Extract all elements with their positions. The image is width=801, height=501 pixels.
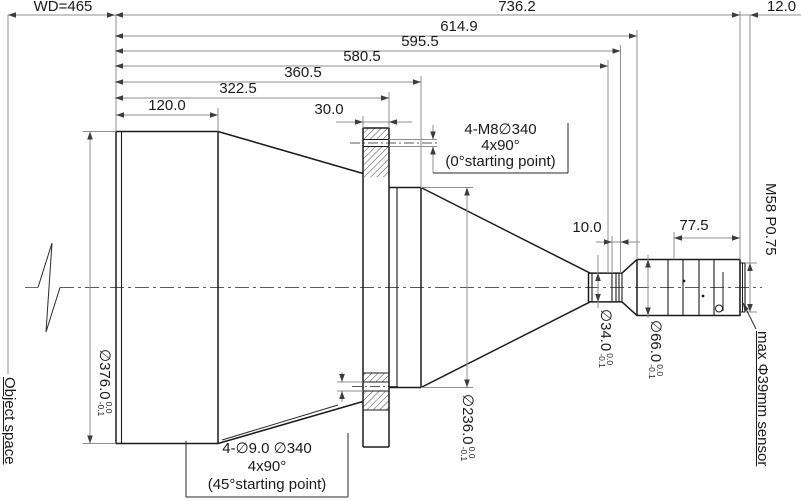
dia-34-tolerance: 0.0-0.1 — [598, 353, 614, 368]
dia-236-label: ∅236.00.0-0.1 — [460, 394, 476, 461]
dim-595-5: 595.5 — [382, 35, 458, 49]
dim-614-9: 614.9 — [421, 20, 497, 34]
object-space-label: Object space — [2, 377, 17, 465]
dim-736-2: 736.2 — [479, 0, 555, 14]
dim-30-0: 30.0 — [301, 103, 357, 117]
through-holes-line2: 4x90° — [187, 458, 347, 475]
dia-376-tolerance: 0.0-0.1 — [97, 402, 113, 417]
m58-thread-label: M58 P0.75 — [763, 183, 778, 256]
lens-dimension-drawing: WD=465 736.2 12.0 614.9 595.5 580.5 360.… — [0, 0, 801, 501]
object-plane-break-symbol — [38, 243, 60, 332]
through-holes-line3: (45°starting point) — [187, 475, 347, 494]
dim-12-0: 12.0 — [762, 0, 801, 14]
dim-120-0: 120.0 — [129, 99, 205, 113]
m8-holes-line3: (0°starting point) — [433, 153, 568, 170]
m8-holes-line2: 4x90° — [433, 138, 568, 153]
through-holes-label: 4-∅9.0 ∅340 4x90° (45°starting point) — [187, 440, 347, 494]
m8-holes-label: 4-M8∅340 4x90° (0°starting point) — [433, 122, 568, 170]
through-holes-line1: 4-∅9.0 ∅340 — [187, 440, 347, 458]
dia-236-value: ∅236.0 — [459, 394, 476, 445]
dim-322-5: 322.5 — [200, 82, 276, 96]
m8-holes-line1: 4-M8∅340 — [433, 122, 568, 138]
dia-376-value: ∅376.0 — [96, 349, 113, 400]
dia-66-label: ∅66.00.0-0.1 — [648, 320, 664, 379]
dia-66-tolerance: 0.0-0.1 — [648, 364, 664, 379]
dim-580-5: 580.5 — [324, 50, 400, 64]
dia-34-value: ∅34.0 — [597, 309, 614, 351]
dim-10-0: 10.0 — [559, 221, 615, 235]
dia-236-tolerance: 0.0-0.1 — [460, 447, 476, 462]
dia-34-label: ∅34.00.0-0.1 — [598, 309, 614, 368]
dim-360-5: 360.5 — [265, 66, 341, 80]
dia-66-value: ∅66.0 — [647, 320, 664, 362]
flange-section-hatching — [363, 128, 389, 410]
dim-working-distance: WD=465 — [25, 0, 101, 14]
drawing-canvas — [0, 0, 801, 501]
dia-376-label: ∅376.00.0-0.1 — [97, 349, 113, 416]
dim-77-5: 77.5 — [666, 219, 722, 233]
sensor-note-label: max Φ39mm sensor — [755, 331, 770, 466]
